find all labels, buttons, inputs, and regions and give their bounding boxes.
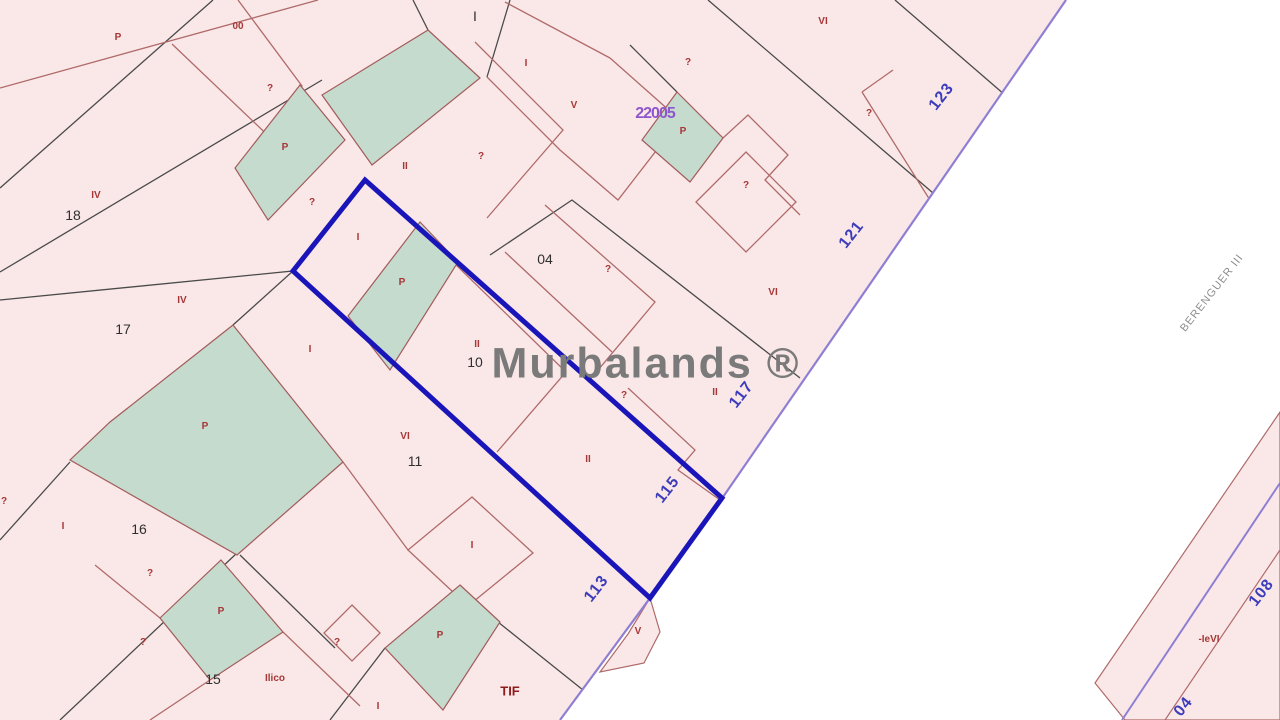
unit-mark-label: ?	[1, 497, 7, 507]
unit-mark-label: -IeVI	[1198, 635, 1219, 645]
unit-mark-label: ?	[605, 265, 611, 275]
unit-mark-label: VI	[818, 17, 827, 27]
parcel-number-label: 16	[131, 522, 147, 536]
parcel-number-label: 04	[537, 252, 553, 266]
parcel-number-label: 10	[467, 355, 483, 369]
parcel-number-label: 18	[65, 208, 81, 222]
unit-mark-label: VI	[400, 432, 409, 442]
unit-mark-label: ?	[309, 198, 315, 208]
street-number-label: 115	[653, 474, 683, 507]
cadastral-map[interactable]: Murbalands ® BERENGUER III 22005 1231211…	[0, 0, 1280, 720]
watermark: Murbalands ®	[492, 340, 801, 389]
unit-mark-label: II	[474, 340, 480, 350]
unit-mark-label: I	[309, 345, 312, 355]
unit-mark-label: VI	[768, 288, 777, 298]
unit-mark-label: I	[357, 233, 360, 243]
unit-mark-label: II	[585, 455, 591, 465]
label-layer: Murbalands ® BERENGUER III 22005 1231211…	[0, 0, 1280, 720]
unit-mark-label: ?	[621, 391, 627, 401]
unit-mark-label: ?	[334, 638, 340, 648]
street-number-label: 123	[927, 80, 958, 113]
unit-mark-label: P	[680, 127, 687, 137]
unit-mark-label: Ilico	[265, 674, 285, 684]
unit-mark-label: IV	[91, 191, 100, 201]
unit-mark-label: TIF	[500, 685, 520, 698]
unit-mark-label: ?	[743, 181, 749, 191]
unit-mark-label: I	[471, 541, 474, 551]
unit-mark-label: IV	[177, 296, 186, 306]
unit-mark-label: I	[377, 702, 380, 712]
unit-mark-label: ?	[147, 569, 153, 579]
unit-mark-label: ?	[140, 638, 146, 648]
unit-mark-label: P	[202, 422, 209, 432]
unit-mark-label: ?	[478, 152, 484, 162]
unit-mark-label: P	[115, 33, 122, 43]
parcel-number-label: 11	[408, 454, 423, 468]
unit-mark-label: I	[525, 59, 528, 69]
unit-mark-label: I	[62, 522, 65, 532]
unit-mark-label: ?	[866, 109, 872, 119]
street-number-label: 108	[1247, 576, 1278, 609]
unit-mark-label: P	[218, 607, 225, 617]
unit-mark-label: II	[402, 162, 408, 172]
unit-mark-label: 00	[232, 22, 243, 32]
parcel-number-label: 15	[205, 672, 221, 686]
unit-mark-label: P	[282, 143, 289, 153]
unit-mark-label: P	[399, 278, 406, 288]
unit-mark-label: V	[635, 627, 642, 637]
street-number-label: 04	[1172, 694, 1197, 719]
unit-mark-label: P	[437, 631, 444, 641]
street-name-label: BERENGUER III	[1178, 252, 1246, 334]
unit-mark-label: ?	[685, 58, 691, 68]
street-number-label: 113	[582, 573, 612, 606]
parcel-number-label: 17	[115, 322, 131, 336]
unit-mark-label: V	[571, 101, 578, 111]
unit-mark-label: II	[712, 388, 718, 398]
parcel-number-label: I	[473, 9, 477, 23]
unit-mark-label: ?	[267, 84, 273, 94]
block-ref-label: 22005	[635, 105, 675, 123]
street-number-label: 121	[837, 218, 868, 251]
